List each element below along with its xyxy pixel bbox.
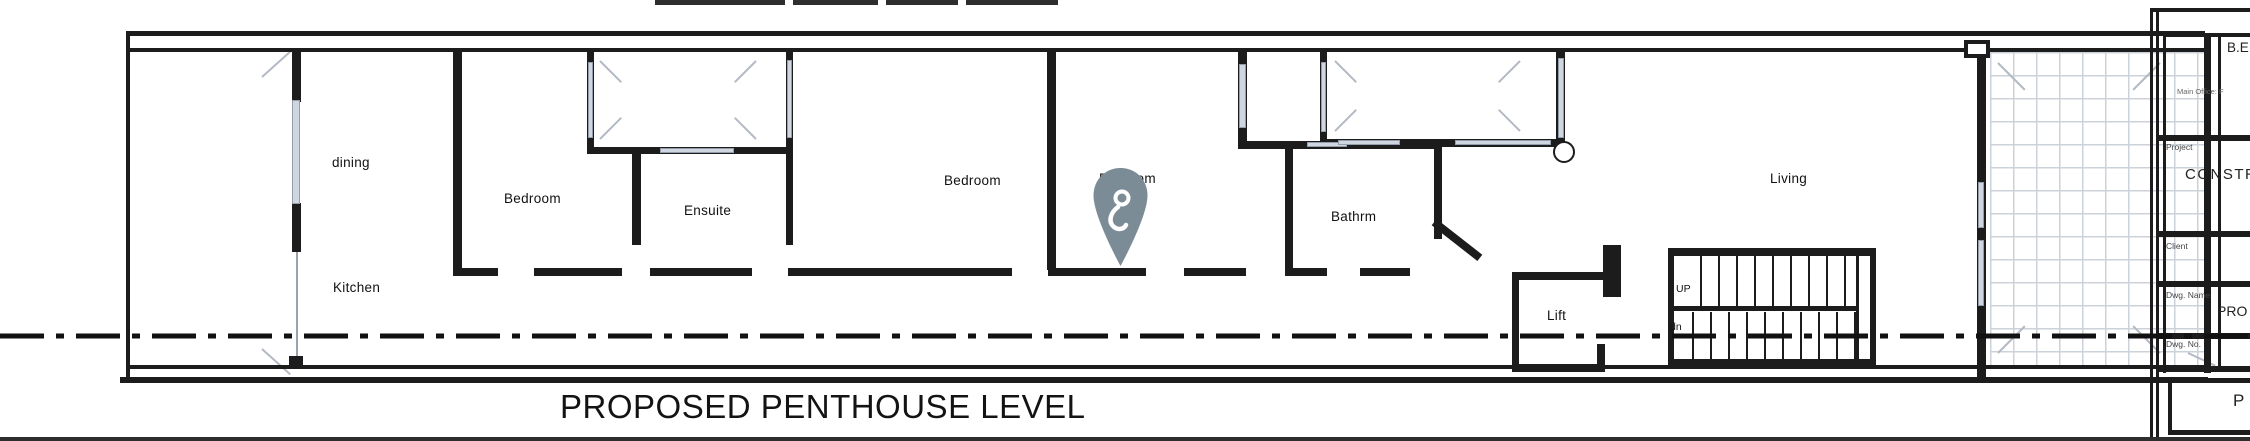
- room-label-lift: Lift: [1547, 308, 1566, 323]
- wall-segment-angled: [1432, 219, 1483, 261]
- wall-segment: [1856, 256, 1859, 359]
- stair-tread: [1764, 312, 1766, 360]
- wall-segment: [120, 377, 2208, 383]
- corner-mark: [261, 51, 291, 78]
- window: [1338, 140, 1400, 145]
- wall-segment: [2156, 8, 2159, 441]
- wall-segment: [1512, 272, 1519, 372]
- wall-segment: [1597, 344, 1605, 372]
- wall-segment: [1285, 268, 1327, 276]
- wall-segment: [2168, 378, 2172, 435]
- wall-segment: [788, 268, 1012, 276]
- stair-tread: [1728, 312, 1730, 360]
- wall-segment: [2163, 33, 2250, 37]
- wall-segment: [2204, 33, 2211, 373]
- wall-segment: [2156, 366, 2250, 372]
- stair-up-label: UP: [1676, 283, 1691, 295]
- floor-plan-sheet: dining Kitchen Bedroom Ensuite Bedroom B…: [0, 0, 2250, 441]
- stair-tread: [1746, 312, 1748, 360]
- stair-tread: [1772, 255, 1774, 306]
- stair-tread: [1818, 312, 1820, 360]
- wall-segment: [1047, 48, 1056, 270]
- stair-tread: [1808, 255, 1810, 306]
- window: [660, 148, 734, 153]
- room-label-bedroom-2: Bedroom: [944, 173, 1001, 188]
- wall-segment: [126, 31, 130, 383]
- corner-mark: [1334, 60, 1357, 83]
- wall-segment: [1603, 245, 1621, 297]
- stair-tread: [1754, 255, 1756, 306]
- titleblock-logo: B.E: [2227, 40, 2249, 55]
- wall-segment: [2163, 33, 2166, 373]
- window: [588, 62, 593, 138]
- wall-segment: [2156, 281, 2250, 287]
- corner-mark: [1498, 60, 1521, 83]
- stair-tread: [1836, 312, 1838, 360]
- wall-segment: [130, 48, 2205, 52]
- room-label-bathroom: Bathrm: [1331, 209, 1376, 224]
- wall-segment: [1238, 141, 1303, 149]
- drawing-title: PROPOSED PENTHOUSE LEVEL: [560, 388, 1085, 426]
- room-label-ensuite: Ensuite: [684, 203, 731, 218]
- wall-segment: [453, 268, 498, 276]
- wall-segment: [126, 365, 2205, 369]
- wall-segment: [1870, 248, 1876, 366]
- corner-mark: [261, 348, 291, 375]
- wall-segment: [1674, 306, 1856, 311]
- corner-mark: [599, 117, 622, 140]
- corner-mark: [734, 60, 757, 83]
- wall-segment: [126, 31, 2205, 36]
- wall-segment: [2218, 35, 2221, 372]
- titleblock-project-label: Project: [2166, 142, 2192, 152]
- wall-segment: [1285, 149, 1293, 270]
- window: [1978, 182, 1984, 228]
- wall-segment: [786, 153, 793, 245]
- room-label-living: Living: [1770, 171, 1807, 186]
- stair-tread: [1854, 312, 1856, 360]
- wall-segment: [292, 203, 301, 252]
- stair-tread: [1782, 312, 1784, 360]
- terrace-tiles: [1990, 52, 2205, 365]
- page-bottom-edge: [0, 437, 2250, 441]
- window: [1558, 58, 1564, 138]
- corner-mark: [734, 117, 757, 140]
- wall-segment: [2168, 430, 2250, 435]
- wall-segment: [453, 48, 462, 270]
- wall-segment: [2156, 135, 2250, 141]
- wall-segment: [1184, 268, 1246, 276]
- stair-tread: [1718, 255, 1720, 306]
- wall-notch: [1964, 40, 1990, 58]
- cropped-text-bar: [966, 0, 1058, 5]
- window: [292, 100, 300, 204]
- titleblock-office-line: Main Office: F: [2177, 87, 2224, 96]
- stair-tread: [1692, 312, 1694, 360]
- titleblock-dwgname-label: Dwg. Name: [2166, 290, 2210, 300]
- corner-mark: [1498, 109, 1521, 132]
- titleblock-client-label: Client: [2166, 241, 2188, 251]
- stair-tread: [1700, 255, 1702, 306]
- wall-segment: [2156, 231, 2250, 237]
- titleblock-bottom-text: P: [2233, 391, 2244, 411]
- room-label-bedroom-1: Bedroom: [504, 191, 561, 206]
- window: [1978, 240, 1984, 306]
- window: [1321, 62, 1326, 132]
- stair-tread: [1844, 255, 1846, 306]
- location-pin-icon[interactable]: [1092, 167, 1149, 267]
- wall-segment: [1512, 364, 1605, 372]
- wall-segment: [650, 268, 752, 276]
- stair-tread: [1800, 312, 1802, 360]
- wall-segment: [1668, 359, 1876, 367]
- wall-segment: [2168, 378, 2250, 383]
- wall-segment: [1512, 272, 1607, 280]
- corner-mark: [1334, 109, 1357, 132]
- corner-mark: [599, 60, 622, 83]
- room-label-kitchen: Kitchen: [333, 280, 380, 295]
- wall-segment: [1360, 268, 1410, 276]
- titleblock-project-value: CONSTR: [2185, 166, 2250, 183]
- wall-segment: [2150, 8, 2250, 12]
- stair-tread: [1790, 255, 1792, 306]
- stair-tread: [1710, 312, 1712, 360]
- titleblock-dwgno-label: Dwg. No.: [2166, 339, 2201, 349]
- wall-segment: [632, 153, 641, 245]
- cropped-text-bar: [655, 0, 785, 5]
- cropped-text-bar: [793, 0, 878, 5]
- wall-segment: [289, 356, 303, 368]
- stair-down-label: dn: [1670, 321, 1682, 333]
- window: [1455, 140, 1551, 145]
- window: [1239, 64, 1246, 128]
- wall-segment: [1048, 268, 1146, 276]
- window: [787, 60, 792, 138]
- column-circle: [1553, 141, 1575, 163]
- titleblock-dwgname-value: PRO: [2217, 303, 2247, 319]
- stair-tread: [1826, 255, 1828, 306]
- cropped-text-bar: [886, 0, 958, 5]
- room-label-dining: dining: [332, 155, 370, 170]
- wall-segment: [2150, 8, 2153, 441]
- wall-trace: [296, 252, 298, 365]
- stair-tread: [1736, 255, 1738, 306]
- wall-segment: [292, 48, 301, 102]
- wall-segment: [534, 268, 622, 276]
